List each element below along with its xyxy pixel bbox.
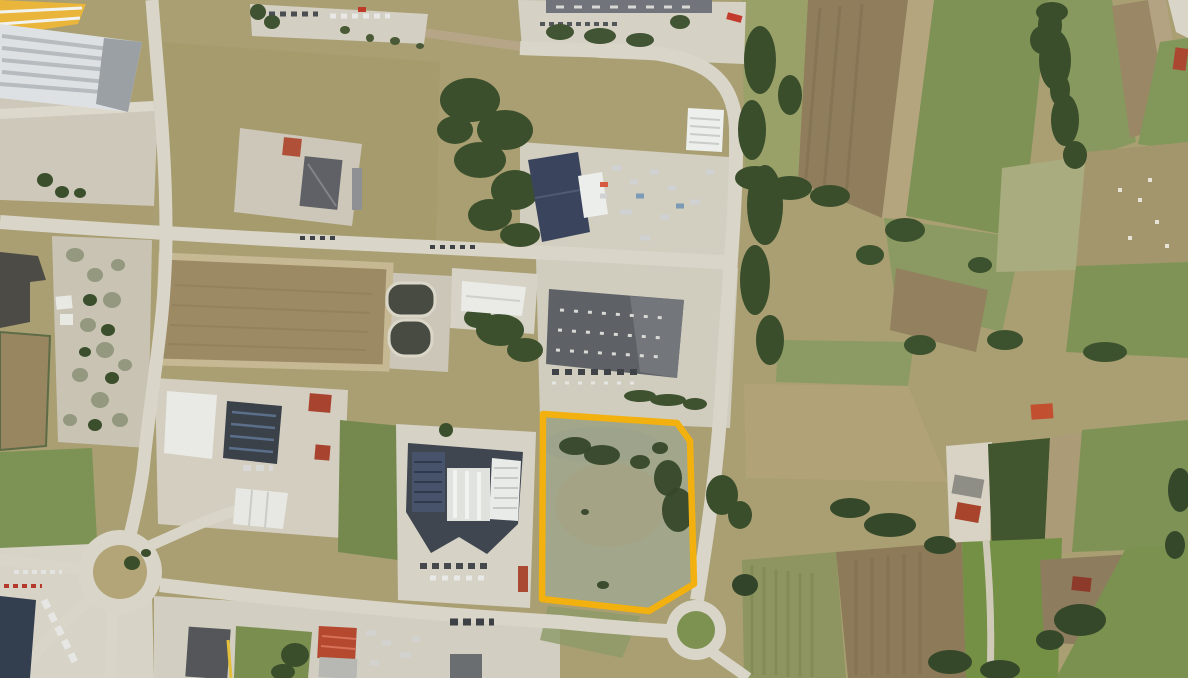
map-canvas[interactable] bbox=[0, 0, 1188, 678]
building-gray-bottom bbox=[450, 654, 482, 678]
building-red-bottom-gray bbox=[319, 657, 358, 678]
field-bottom-plowstripe bbox=[742, 552, 846, 678]
tree-near-roundabout-right bbox=[732, 574, 758, 596]
building-white-2 bbox=[233, 488, 288, 529]
house-darkred-low bbox=[1071, 576, 1091, 592]
roundabout-right-island bbox=[677, 611, 715, 649]
road-south-exit bbox=[110, 605, 112, 678]
lagoon-pond-2 bbox=[389, 320, 432, 356]
field-mid-green2 bbox=[1066, 262, 1188, 358]
shed-red-small bbox=[282, 137, 302, 157]
red-car-top bbox=[358, 7, 366, 12]
shed-thin bbox=[352, 168, 362, 210]
building-dark-bottom bbox=[185, 627, 230, 678]
satellite-map[interactable]: Aerial satellite view of an industrial a… bbox=[0, 0, 1188, 678]
building-white-ribbed bbox=[686, 108, 724, 152]
parcel-shade-mid bbox=[555, 463, 665, 547]
green-strip-mid bbox=[338, 420, 402, 560]
roundabout-left-island bbox=[93, 545, 147, 599]
shed-white-1 bbox=[55, 295, 72, 310]
tree-at-solar bbox=[439, 423, 453, 437]
junkyard-red-bit bbox=[600, 182, 608, 187]
house-red-mid bbox=[1031, 403, 1054, 419]
lagoon-pond-1 bbox=[387, 283, 435, 316]
building-white-1 bbox=[164, 391, 217, 459]
red-house-2 bbox=[314, 444, 330, 460]
field-left-brown bbox=[0, 332, 50, 450]
field-east-greenstrip bbox=[776, 340, 914, 386]
field-bales bbox=[1076, 142, 1188, 266]
shed-white-2 bbox=[60, 314, 73, 325]
building-red-bottom bbox=[317, 626, 357, 660]
red-shed-solar bbox=[518, 566, 528, 592]
building-navy-bottomleft bbox=[0, 596, 36, 678]
building-solar-left bbox=[223, 401, 282, 464]
red-house-1 bbox=[308, 393, 331, 413]
field-mid-pale bbox=[996, 156, 1086, 272]
